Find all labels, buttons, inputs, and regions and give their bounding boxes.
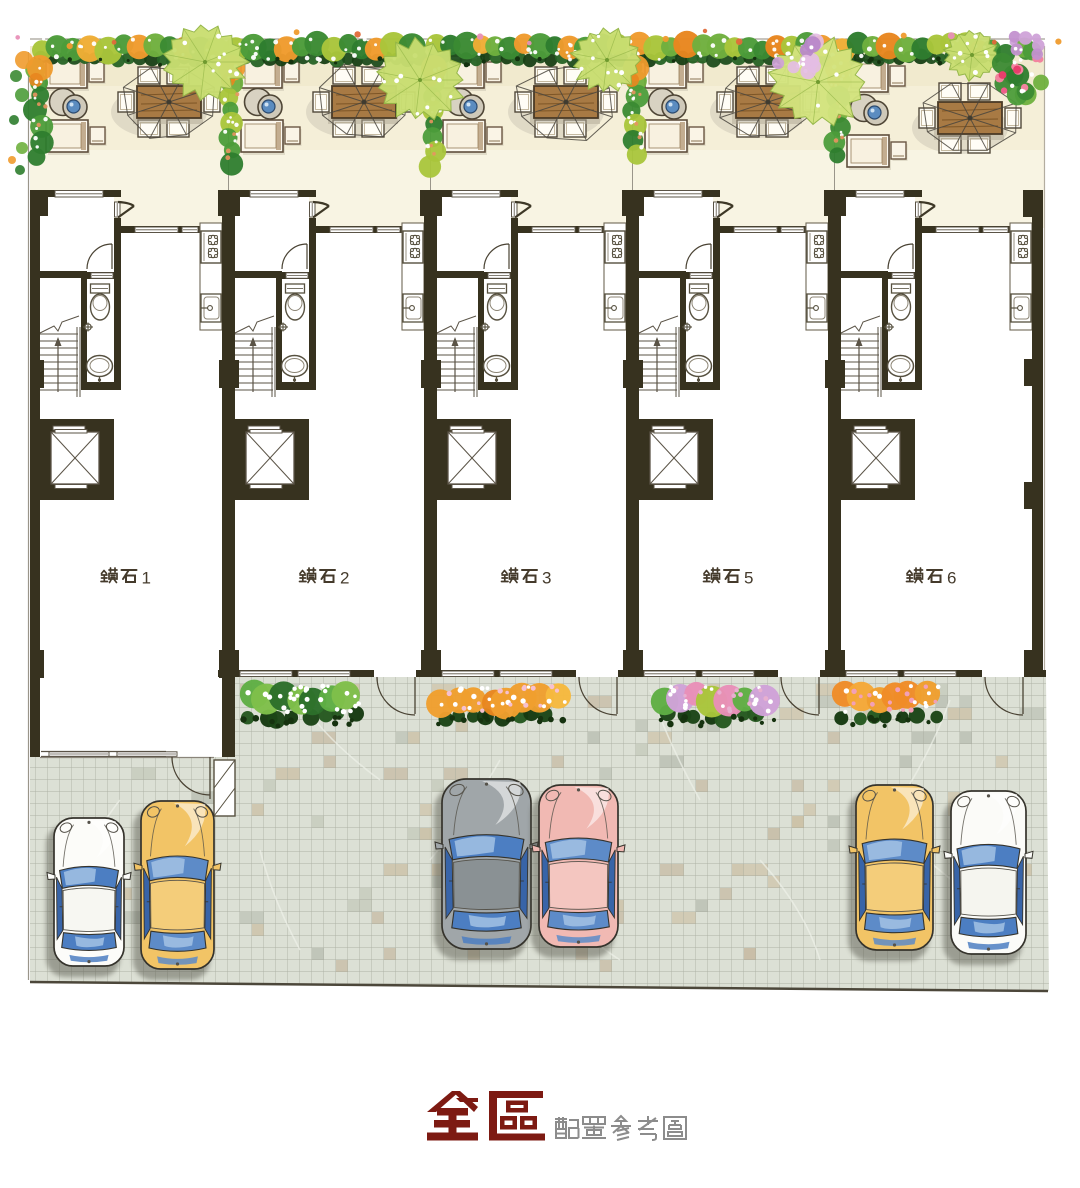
svg-text:1: 1 [142, 569, 151, 588]
svg-text:2: 2 [340, 569, 349, 588]
svg-text:3: 3 [542, 569, 551, 588]
svg-text:6: 6 [947, 569, 956, 588]
svg-text:5: 5 [744, 569, 753, 588]
